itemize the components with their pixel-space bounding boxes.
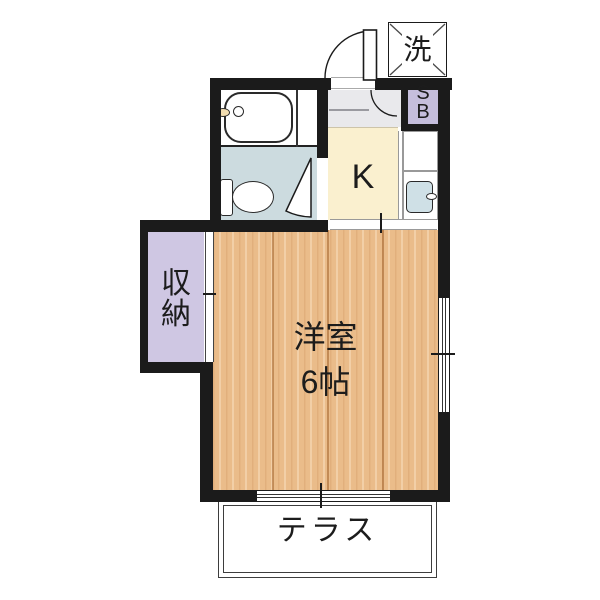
threshold-center-tick (380, 213, 382, 233)
window-south-tick (320, 483, 322, 508)
shoe-box-label: S B (408, 84, 438, 122)
terrace-label: テラス (218, 515, 437, 546)
bathroom-door-icon (286, 158, 311, 217)
main-room-size: 6帖 (213, 366, 438, 399)
main-room-name: 洋室 (213, 321, 438, 354)
closet-door-tick (203, 293, 216, 295)
kitchen-label: K (328, 160, 398, 195)
closet-label: 収 納 (148, 268, 204, 330)
symbols-overlay (0, 0, 600, 600)
floor-plan: 洗 S B K 収 納 洋室 6帖 テラス (0, 0, 600, 600)
laundry-label: 洗 (388, 35, 447, 64)
entry-door-icon (325, 30, 397, 116)
